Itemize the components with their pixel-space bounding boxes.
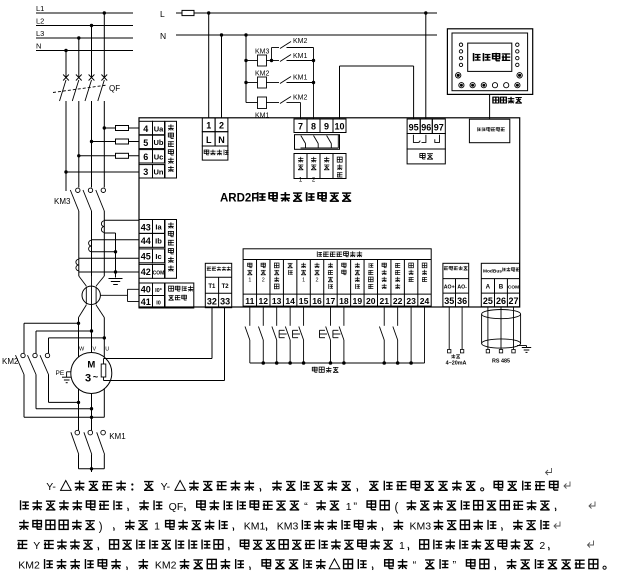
svg-text:18: 18 [339, 296, 349, 306]
svg-text:L: L [206, 135, 212, 145]
svg-text:Un: Un [154, 168, 164, 177]
svg-text:“: “ [304, 501, 308, 513]
svg-text:6: 6 [143, 152, 148, 162]
svg-text:10: 10 [334, 122, 344, 132]
svg-text:Y: Y [33, 540, 40, 552]
svg-text:N: N [218, 135, 225, 145]
svg-text:24: 24 [420, 296, 430, 306]
svg-text:Uc: Uc [154, 153, 164, 162]
svg-text:KM1: KM1 [293, 75, 308, 82]
svg-text:96: 96 [421, 122, 431, 132]
svg-text:U: U [105, 347, 109, 353]
svg-text:26: 26 [496, 296, 506, 306]
svg-text:1: 1 [206, 121, 211, 131]
svg-text:32: 32 [207, 297, 217, 307]
svg-text:KM2: KM2 [2, 357, 19, 366]
svg-text:ARD2F: ARD2F [220, 193, 258, 205]
svg-text:4: 4 [143, 124, 148, 134]
svg-text:W: W [79, 347, 85, 353]
svg-text:17: 17 [326, 296, 336, 306]
svg-text:A: A [486, 284, 491, 291]
svg-text:13: 13 [272, 296, 282, 306]
svg-text:PE: PE [56, 370, 65, 377]
svg-text:KM3: KM3 [255, 49, 270, 56]
svg-text:2: 2 [316, 278, 319, 284]
svg-text:QF: QF [109, 84, 120, 93]
svg-text:7: 7 [298, 122, 303, 132]
svg-text:M: M [87, 360, 95, 371]
svg-text:”: ” [452, 560, 456, 572]
svg-text:T1: T1 [208, 284, 216, 290]
svg-text:I0: I0 [156, 301, 161, 307]
svg-text:23: 23 [406, 296, 416, 306]
svg-text:16: 16 [312, 296, 322, 306]
svg-text:KM2: KM2 [155, 560, 177, 572]
svg-text:2: 2 [539, 540, 545, 552]
svg-text:T2: T2 [222, 284, 230, 290]
svg-text:Ub: Ub [154, 138, 164, 147]
svg-text:Y-: Y- [161, 481, 171, 493]
svg-text:1: 1 [346, 501, 352, 513]
svg-text:43: 43 [141, 222, 151, 232]
svg-text:B: B [499, 284, 504, 291]
svg-text:3: 3 [143, 167, 148, 177]
svg-text:KM3: KM3 [277, 520, 299, 532]
svg-text:9: 9 [324, 122, 329, 132]
svg-text:AO-: AO- [457, 284, 467, 290]
svg-text:1: 1 [154, 520, 160, 532]
svg-text:KM3: KM3 [410, 520, 432, 532]
svg-text:RS 485: RS 485 [492, 359, 510, 365]
svg-text:2: 2 [262, 278, 265, 284]
svg-text:1: 1 [302, 278, 305, 284]
svg-text:L2: L2 [36, 17, 44, 26]
svg-text:40: 40 [141, 285, 151, 295]
svg-text:35: 35 [444, 296, 454, 306]
svg-text:15: 15 [299, 296, 309, 306]
svg-text:Ic: Ic [155, 252, 161, 261]
svg-text:V: V [93, 347, 97, 353]
svg-text:1: 1 [399, 540, 405, 552]
svg-text:COM: COM [508, 284, 519, 290]
svg-text:KM1: KM1 [255, 113, 270, 120]
svg-text:41: 41 [141, 297, 151, 307]
svg-text:97: 97 [434, 122, 444, 132]
svg-text:25: 25 [483, 296, 493, 306]
svg-text:(: ( [394, 502, 398, 514]
svg-text:COM: COM [153, 270, 165, 276]
svg-text:44: 44 [141, 236, 151, 246]
svg-text:1: 1 [248, 278, 251, 284]
svg-text:33: 33 [220, 297, 230, 307]
svg-text:“: “ [413, 560, 417, 572]
svg-text:Y-: Y- [46, 481, 56, 493]
svg-text:L3: L3 [36, 29, 44, 38]
svg-text:QF: QF [169, 501, 184, 513]
svg-text:Ua: Ua [154, 124, 164, 133]
svg-text:L1: L1 [36, 4, 44, 13]
svg-text:19: 19 [353, 296, 363, 306]
svg-text:Ia: Ia [155, 223, 162, 232]
svg-text:Ib: Ib [155, 237, 162, 246]
svg-text:12: 12 [258, 296, 268, 306]
svg-text:3: 3 [85, 373, 91, 385]
svg-text:AO+: AO+ [444, 284, 455, 290]
svg-text:27: 27 [508, 296, 518, 306]
svg-text:36: 36 [457, 296, 467, 306]
svg-text:2: 2 [219, 121, 224, 131]
svg-text:11: 11 [245, 296, 254, 306]
svg-text:8: 8 [311, 122, 316, 132]
svg-text:ModBus: ModBus [483, 269, 502, 275]
svg-text:21: 21 [379, 296, 389, 306]
svg-text:KM3: KM3 [54, 197, 71, 206]
svg-text:KM1: KM1 [244, 520, 266, 532]
svg-text:20: 20 [366, 296, 376, 306]
svg-text:): ) [99, 521, 103, 533]
svg-text:42: 42 [141, 267, 151, 277]
svg-text:”: ” [353, 501, 357, 513]
svg-text:KM1: KM1 [109, 432, 126, 441]
svg-text:22: 22 [393, 296, 403, 306]
svg-text:4~20mA: 4~20mA [446, 361, 467, 367]
svg-text:N: N [36, 42, 41, 51]
svg-text:KM2: KM2 [18, 560, 40, 572]
svg-text:14: 14 [285, 296, 295, 306]
svg-text:I0*: I0* [155, 288, 163, 294]
svg-text:L: L [160, 9, 165, 19]
svg-text:95: 95 [409, 122, 419, 132]
svg-text:KM2: KM2 [293, 95, 308, 102]
svg-text:~: ~ [93, 372, 98, 382]
svg-text:KM2: KM2 [293, 38, 308, 45]
svg-text:45: 45 [141, 252, 151, 262]
svg-text:5: 5 [143, 138, 148, 148]
svg-text:N: N [160, 31, 166, 41]
svg-text:KM2: KM2 [255, 71, 270, 78]
svg-text:KM1: KM1 [293, 53, 308, 60]
